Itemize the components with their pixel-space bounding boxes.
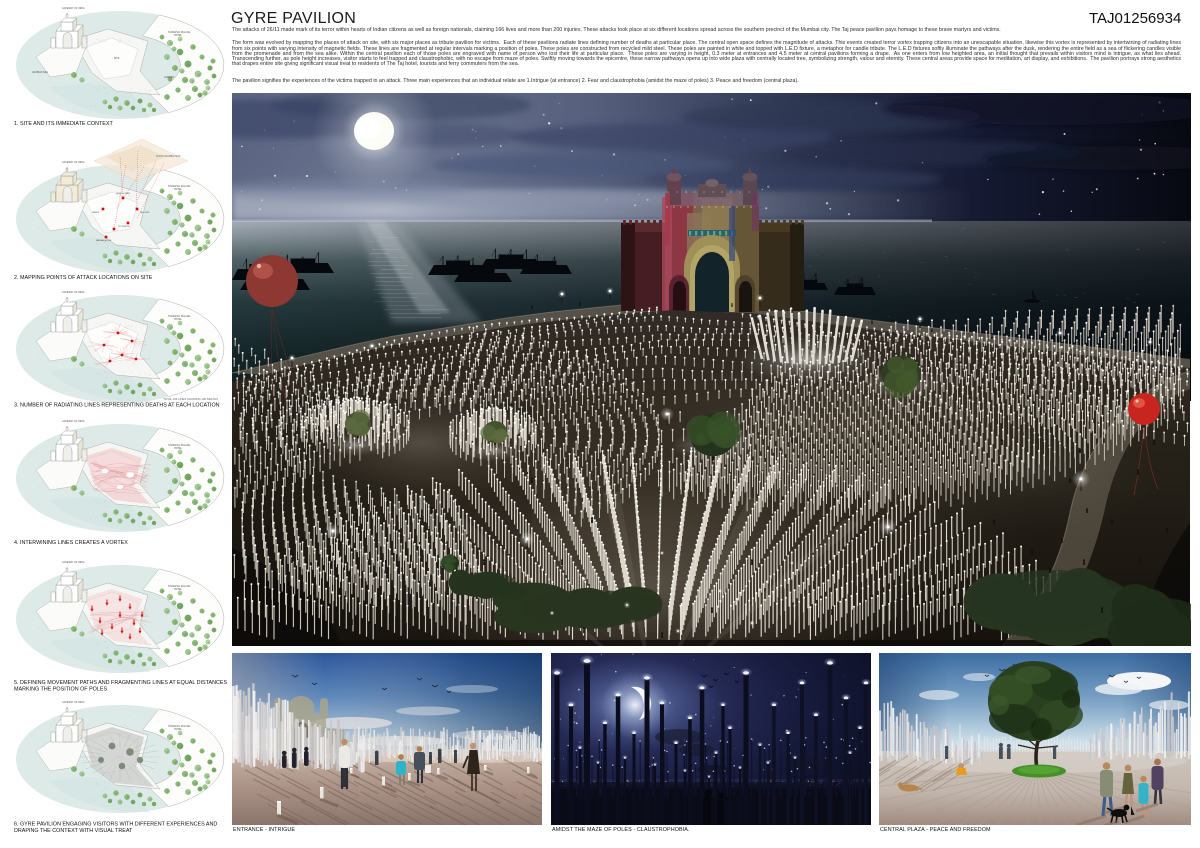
svg-text:TAJ HOTEL: TAJ HOTEL [140, 211, 150, 214]
svg-text:GATEWAY OF INDIA: GATEWAY OF INDIA [62, 291, 85, 294]
svg-text:HOTEL: HOTEL [174, 588, 183, 591]
svg-text:ARABIAN SEA: ARABIAN SEA [32, 71, 48, 74]
svg-text:OBEROI: OBEROI [92, 212, 99, 214]
svg-text:HOTEL: HOTEL [174, 318, 183, 321]
svg-text:GATEWAY OF INDIA: GATEWAY OF INDIA [62, 161, 85, 164]
svg-text:GARDEN: GARDEN [164, 76, 175, 79]
svg-text:HOTEL: HOTEL [174, 728, 183, 731]
svg-text:HOTEL: HOTEL [174, 188, 183, 191]
svg-text:SITE: SITE [114, 57, 120, 60]
svg-text:4. INTERWINING LINES CREATES A: 4. INTERWINING LINES CREATES A VORTEX [14, 540, 128, 546]
svg-text:CST STATION: CST STATION [118, 225, 130, 228]
svg-text:6. GYRE PAVILION ENGAGING VISI: 6. GYRE PAVILION ENGAGING VISITORS WITH … [14, 822, 217, 828]
svg-text:GATEWAY OF INDIA: GATEWAY OF INDIA [62, 701, 85, 704]
svg-text:TOTAL 166 LINES SHOWING 166 DE: TOTAL 166 LINES SHOWING 166 DEATHS [163, 397, 218, 401]
svg-text:GATEWAY OF INDIA: GATEWAY OF INDIA [62, 420, 85, 423]
svg-text:NARIMAN HOUSE: NARIMAN HOUSE [96, 239, 112, 242]
svg-text:HOTEL: HOTEL [174, 34, 183, 37]
svg-text:GATEWAY OF INDIA: GATEWAY OF INDIA [62, 7, 85, 10]
svg-text:3. NUMBER OF RADIATING LINES R: 3. NUMBER OF RADIATING LINES REPRESENTIN… [14, 403, 220, 409]
svg-text:LEOPOLD CAFE: LEOPOLD CAFE [116, 192, 131, 195]
svg-text:MARKING THE POSITION OF POLES: MARKING THE POSITION OF POLES [14, 687, 107, 693]
svg-text:GATEWAY OF INDIA: GATEWAY OF INDIA [62, 561, 85, 564]
svg-text:5. DEFINING MOVEMENT PATHS AND: 5. DEFINING MOVEMENT PATHS AND FRAGMENTI… [14, 680, 227, 686]
svg-text:2. MAPPING POINTS OF ATTACK LO: 2. MAPPING POINTS OF ATTACK LOCATIONS ON… [14, 275, 153, 281]
svg-text:HOTEL: HOTEL [174, 447, 183, 450]
svg-text:DRAPING THE CONTEXT WITH VISUA: DRAPING THE CONTEXT WITH VISUAL TREAT [14, 828, 133, 834]
svg-text:1. SITE AND ITS IMMEDIATE CONT: 1. SITE AND ITS IMMEDIATE CONTEXT [14, 121, 113, 127]
svg-text:SOUTH MUMBAI MAP: SOUTH MUMBAI MAP [156, 155, 181, 158]
